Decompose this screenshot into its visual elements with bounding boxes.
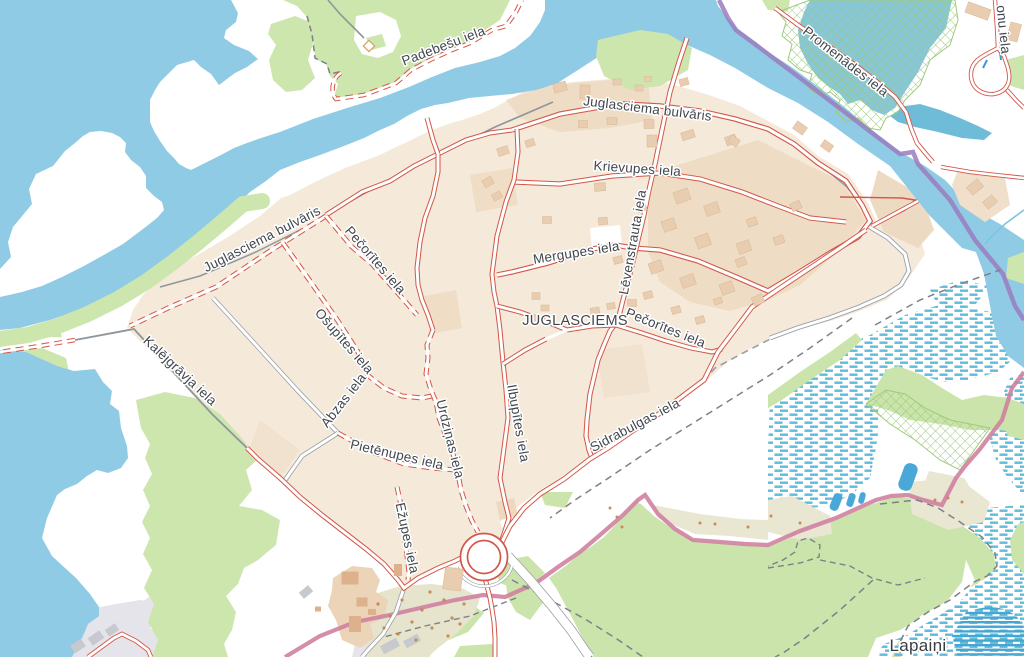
svg-text:Lapaiņi: Lapaiņi xyxy=(890,636,947,655)
svg-text:JUGLASCIEMS: JUGLASCIEMS xyxy=(522,313,628,329)
